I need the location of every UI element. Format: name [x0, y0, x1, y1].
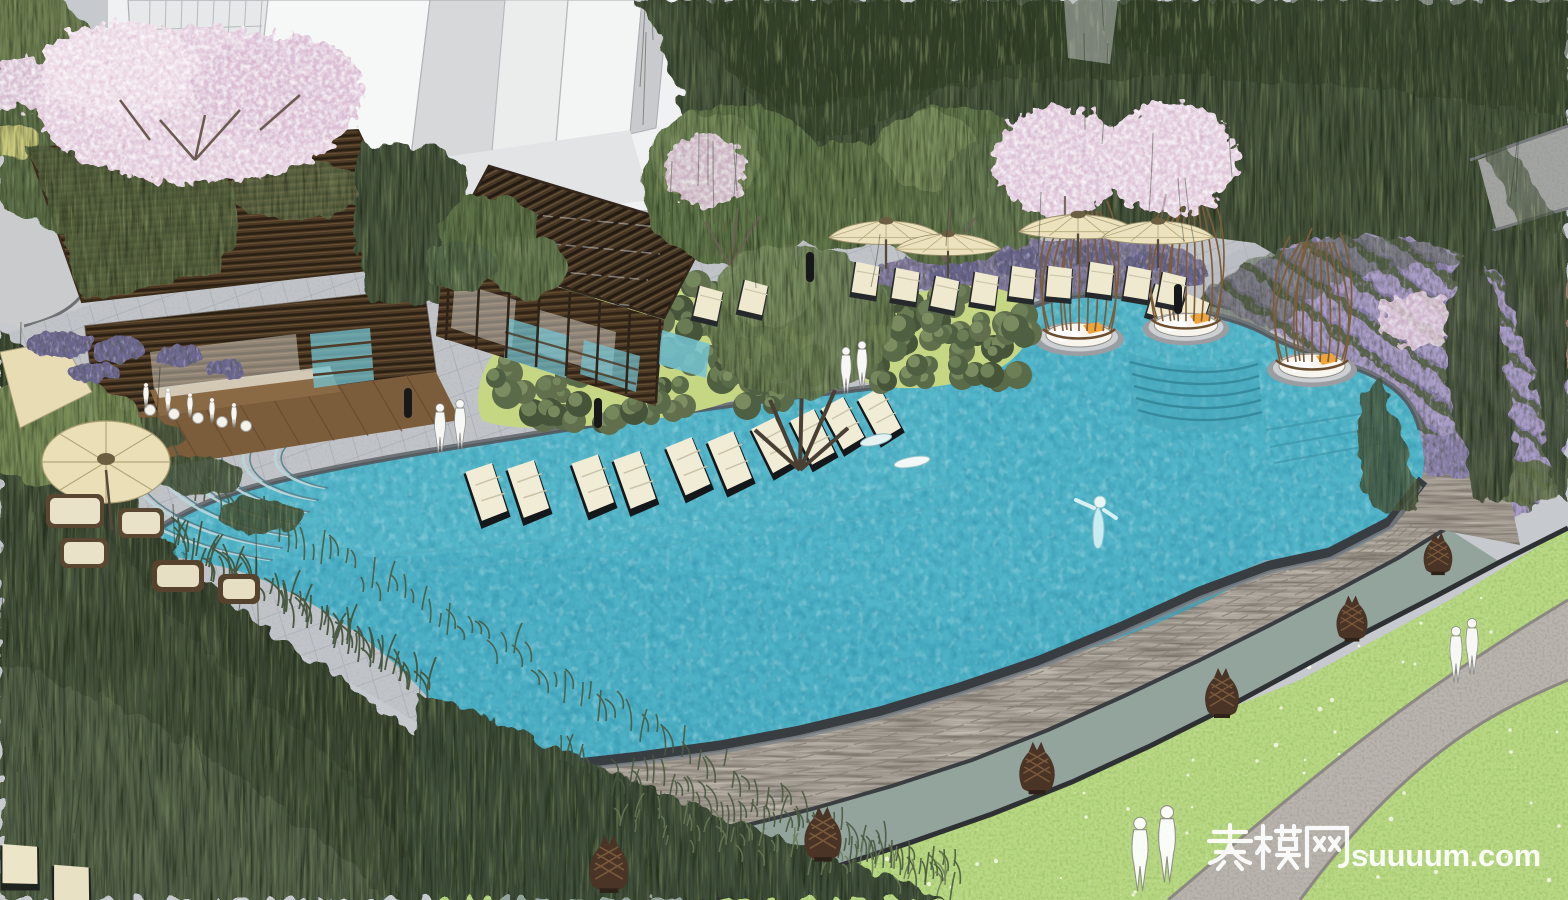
- svg-text:suuuum.com: suuuum.com: [1351, 838, 1541, 873]
